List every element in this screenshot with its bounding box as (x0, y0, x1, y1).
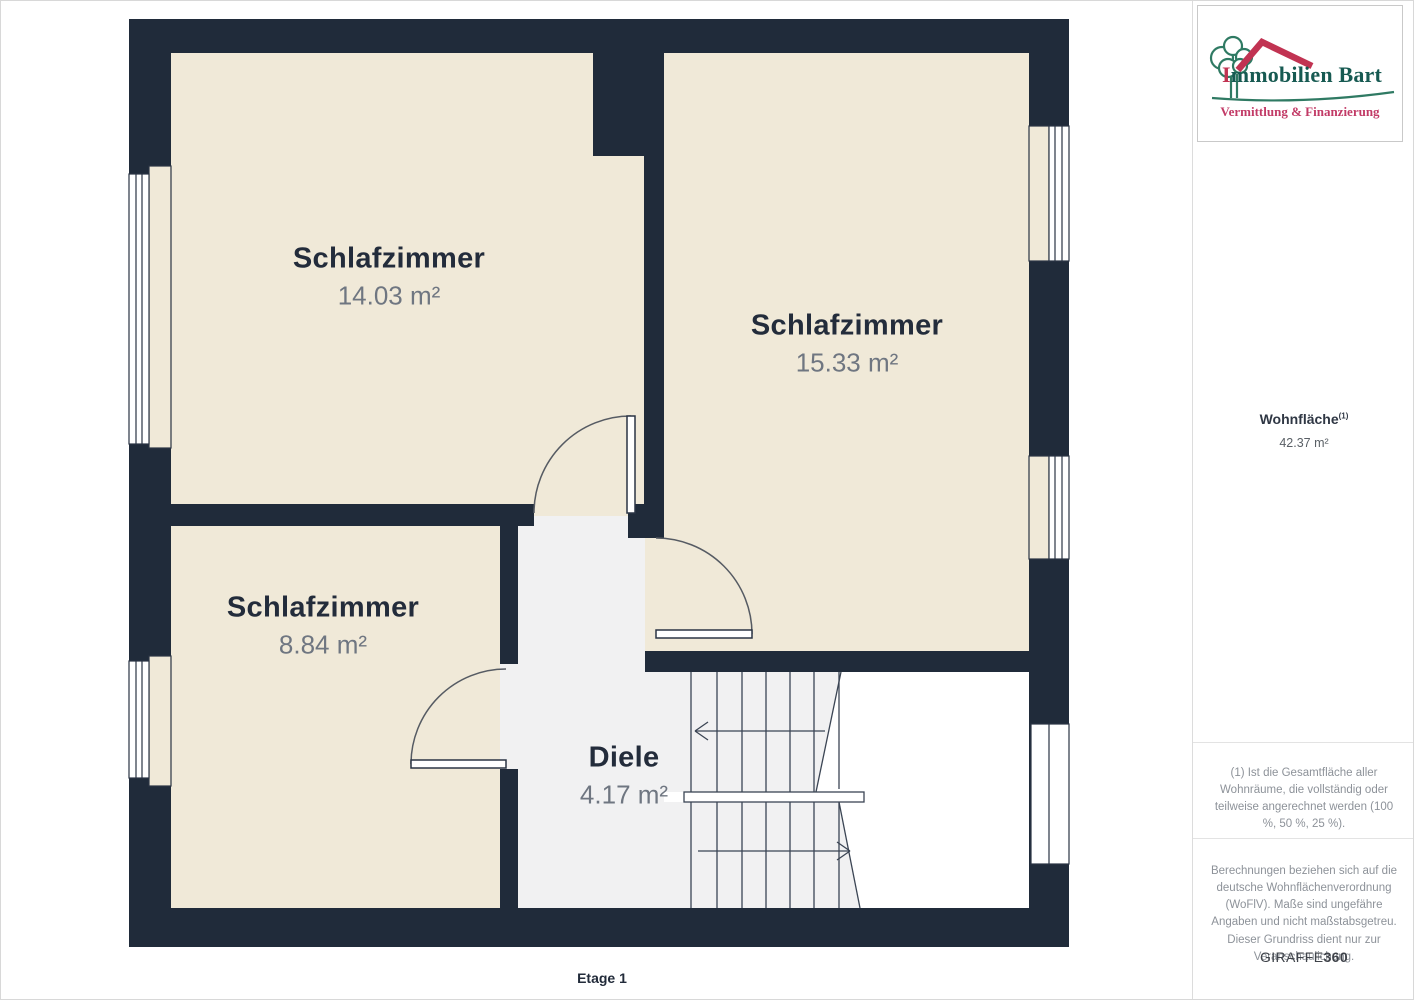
room-area: 15.33 m² (751, 348, 943, 379)
living-area-value: 42.37 m² (1193, 436, 1414, 450)
floorplan-svg (1, 1, 1192, 1000)
window-icon (1049, 126, 1069, 261)
room-name: Schlafzimmer (293, 243, 485, 276)
room-area: 14.03 m² (293, 281, 485, 312)
living-area-label: Wohnfläche(1) (1193, 411, 1414, 427)
window-icon (1031, 724, 1069, 864)
window-sill (149, 166, 171, 448)
living-area-summary: Wohnfläche(1) 42.37 m² (1193, 411, 1414, 450)
brand-name: GIRAFFE (1260, 949, 1323, 965)
giraffe360-brand: GIRAFFE360 (1193, 949, 1414, 965)
window-icon (1049, 456, 1069, 559)
floorplan-page: Schlafzimmer 14.03 m² Schlafzimmer 15.33… (0, 0, 1414, 1000)
room-label-diele: Diele 4.17 m² (580, 742, 668, 811)
door-leaf (656, 630, 752, 638)
room-label-schlafzimmer-2: Schlafzimmer 15.33 m² (751, 310, 943, 379)
divider (1193, 742, 1414, 743)
room-name: Schlafzimmer (751, 310, 943, 343)
info-sidebar: Immobilien Bart Vermittlung & Finanzieru… (1192, 1, 1414, 1000)
living-area-label-text: Wohnfläche (1260, 411, 1339, 427)
stair-handrail (684, 792, 864, 802)
company-tagline: Vermittlung & Finanzierung (1198, 104, 1402, 120)
floor-label: Etage 1 (577, 970, 627, 986)
company-logo: Immobilien Bart Vermittlung & Finanzieru… (1197, 5, 1403, 142)
floorplan-canvas: Schlafzimmer 14.03 m² Schlafzimmer 15.33… (1, 1, 1192, 1000)
footnote-text: (1) Ist die Gesamtfläche aller Wohnräume… (1207, 765, 1401, 834)
brand-suffix: 360 (1323, 949, 1348, 965)
divider (1193, 838, 1414, 839)
window-icon (129, 174, 149, 444)
window-icon (129, 661, 149, 778)
door-leaf (411, 760, 506, 768)
room-name: Schlafzimmer (227, 592, 419, 625)
room-label-schlafzimmer-3: Schlafzimmer 8.84 m² (227, 592, 419, 661)
logo-underline (1212, 92, 1394, 100)
room-name: Diele (580, 742, 668, 775)
room-area: 4.17 m² (580, 780, 668, 811)
door-leaf (627, 416, 635, 513)
room-label-schlafzimmer-1: Schlafzimmer 14.03 m² (293, 243, 485, 312)
company-name: Immobilien Bart (1204, 62, 1400, 88)
footnote-marker: (1) (1339, 411, 1349, 420)
window-sill (149, 656, 171, 786)
window-sill (1029, 456, 1049, 559)
room-area: 8.84 m² (227, 630, 419, 661)
window-sill (1029, 126, 1049, 261)
